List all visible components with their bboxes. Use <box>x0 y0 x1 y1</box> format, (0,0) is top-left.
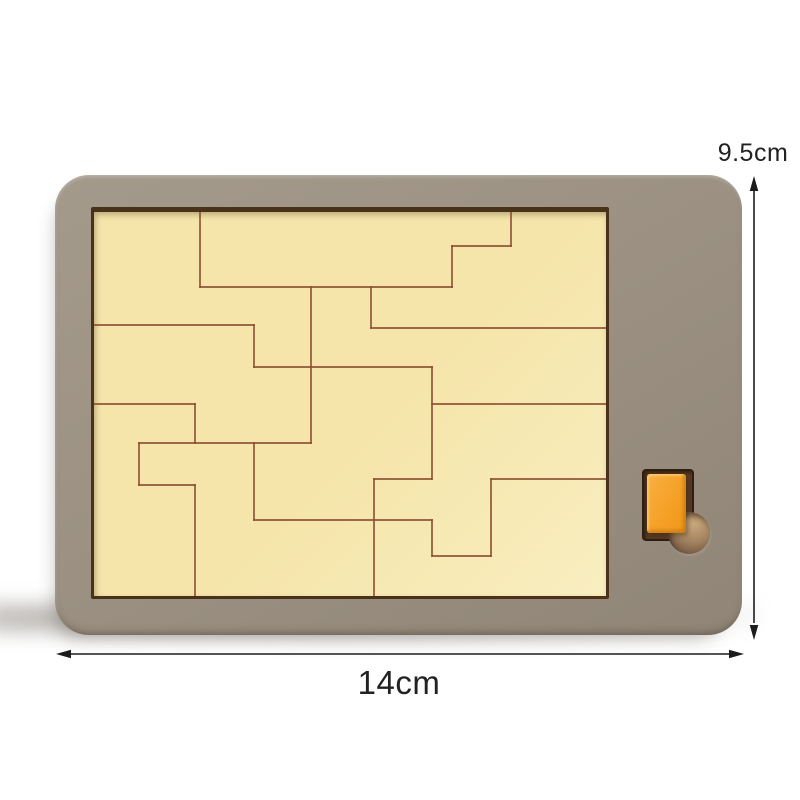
puzzle-piece-outlines <box>94 212 606 596</box>
width-dimension-arrow <box>56 650 744 659</box>
orange-puzzle-piece <box>647 474 686 533</box>
puzzle-board <box>55 175 742 635</box>
puzzle-tray-recess <box>91 207 609 599</box>
height-dimension-arrow <box>750 176 759 640</box>
height-dimension-label: 9.5cm <box>697 141 800 166</box>
width-dimension-label: 14cm <box>309 665 489 700</box>
product-photo: 9.5cm 14cm <box>0 0 800 800</box>
